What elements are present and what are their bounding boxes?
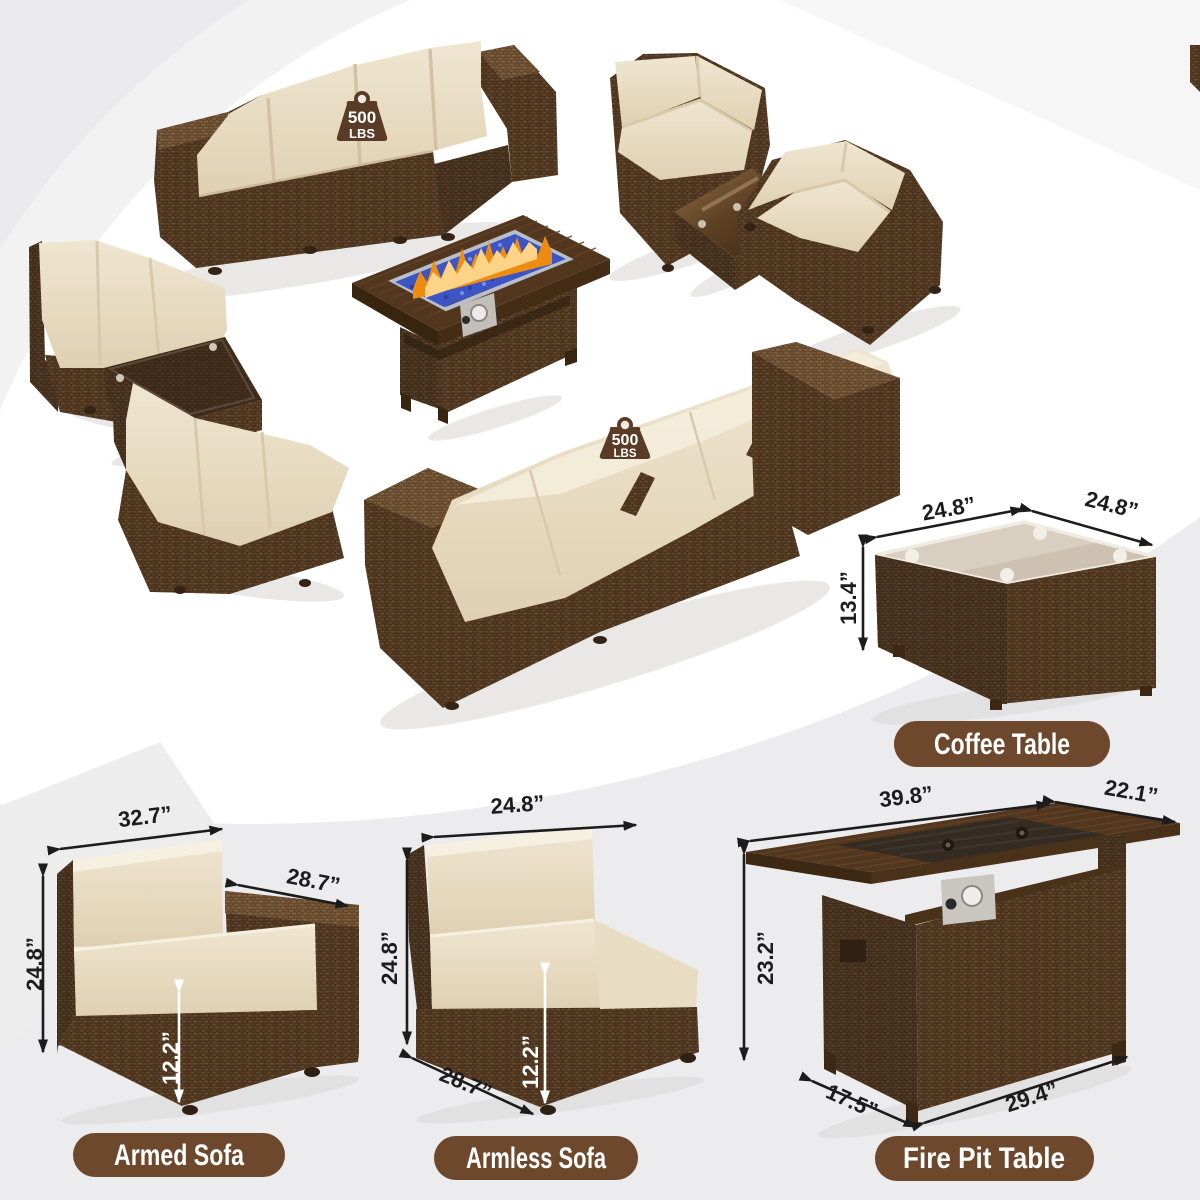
svg-text:24.8”: 24.8” xyxy=(490,790,545,819)
svg-text:Armless Sofa: Armless Sofa xyxy=(466,1142,606,1175)
svg-text:23.2”: 23.2” xyxy=(753,931,778,985)
svg-text:500: 500 xyxy=(348,108,376,127)
svg-text:12.2”: 12.2” xyxy=(518,1035,543,1089)
svg-text:LBS: LBS xyxy=(349,126,375,141)
svg-text:13.4”: 13.4” xyxy=(836,571,861,625)
svg-text:24.8”: 24.8” xyxy=(22,937,47,991)
svg-text:24.8”: 24.8” xyxy=(377,931,402,985)
svg-text:Armed Sofa: Armed Sofa xyxy=(114,1139,244,1172)
svg-text:500: 500 xyxy=(612,432,639,449)
svg-text:LBS: LBS xyxy=(614,448,637,460)
svg-text:Coffee Table: Coffee Table xyxy=(934,728,1070,761)
svg-text:12.2”: 12.2” xyxy=(158,1031,183,1085)
svg-text:Fire Pit Table: Fire Pit Table xyxy=(903,1142,1065,1175)
